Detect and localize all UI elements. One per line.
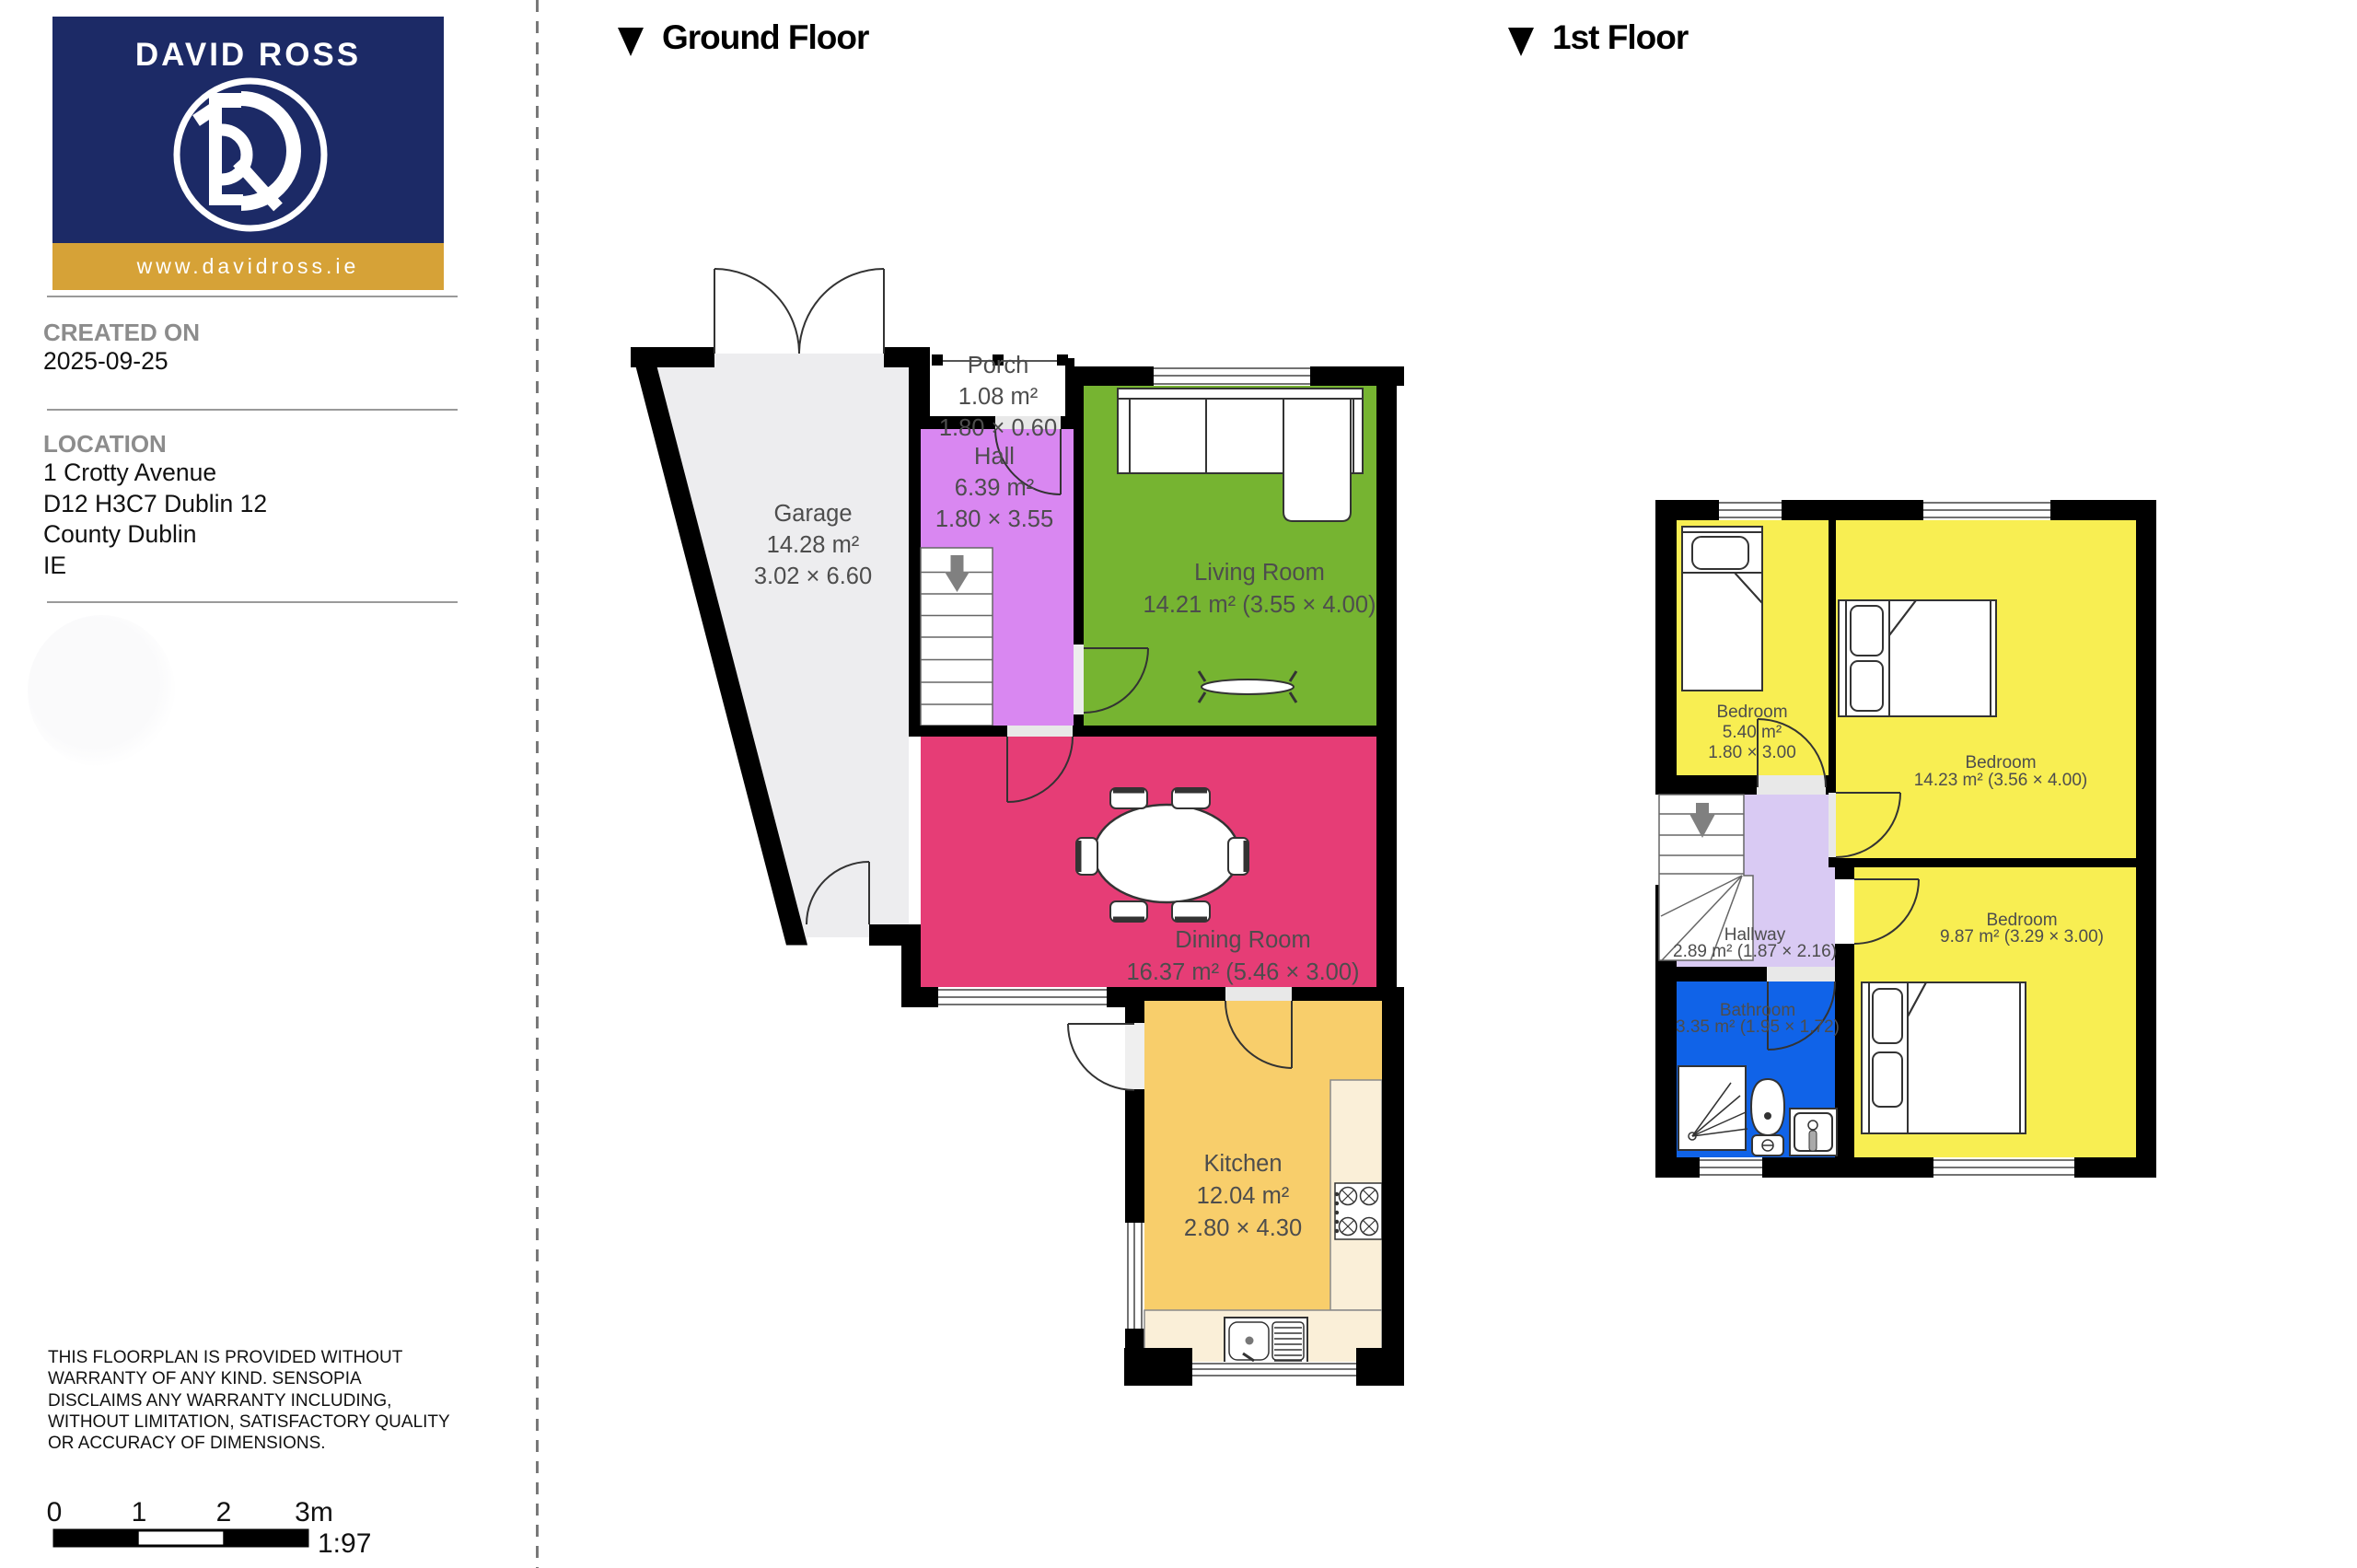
svg-text:Porch: Porch — [968, 353, 1029, 378]
svg-text:Bedroom: Bedroom — [1716, 703, 1787, 722]
svg-text:14.23 m² (3.56 × 4.00): 14.23 m² (3.56 × 4.00) — [1914, 771, 2088, 790]
svg-text:1.80 × 3.00: 1.80 × 3.00 — [1708, 743, 1796, 762]
svg-text:6.39 m²: 6.39 m² — [955, 475, 1034, 501]
svg-text:12.04 m²: 12.04 m² — [1197, 1183, 1290, 1209]
svg-text:Garage: Garage — [773, 501, 852, 527]
svg-text:Hall: Hall — [974, 444, 1015, 470]
svg-text:Dining Room: Dining Room — [1175, 927, 1310, 953]
svg-text:Kitchen: Kitchen — [1203, 1151, 1282, 1177]
svg-text:2.80 × 4.30: 2.80 × 4.30 — [1184, 1215, 1302, 1241]
svg-text:Bedroom: Bedroom — [1965, 753, 2036, 772]
svg-text:5.40 m²: 5.40 m² — [1723, 723, 1782, 742]
svg-text:9.87 m² (3.29 × 3.00): 9.87 m² (3.29 × 3.00) — [1940, 927, 2104, 947]
svg-text:14.28 m²: 14.28 m² — [767, 532, 860, 558]
svg-text:2.89 m² (1.87 × 2.16): 2.89 m² (1.87 × 2.16) — [1673, 942, 1837, 961]
svg-text:1.80 × 0.60: 1.80 × 0.60 — [939, 415, 1057, 441]
svg-text:14.21 m² (3.55 × 4.00): 14.21 m² (3.55 × 4.00) — [1143, 592, 1376, 618]
svg-text:1.80 × 3.55: 1.80 × 3.55 — [935, 506, 1053, 532]
svg-text:3.35 m² (1.95 × 1.72): 3.35 m² (1.95 × 1.72) — [1676, 1017, 1840, 1037]
svg-text:1.08 m²: 1.08 m² — [958, 384, 1038, 410]
svg-text:Living Room: Living Room — [1194, 560, 1325, 586]
svg-text:3.02 × 6.60: 3.02 × 6.60 — [754, 563, 872, 589]
svg-text:16.37 m² (5.46 × 3.00): 16.37 m² (5.46 × 3.00) — [1126, 959, 1359, 985]
